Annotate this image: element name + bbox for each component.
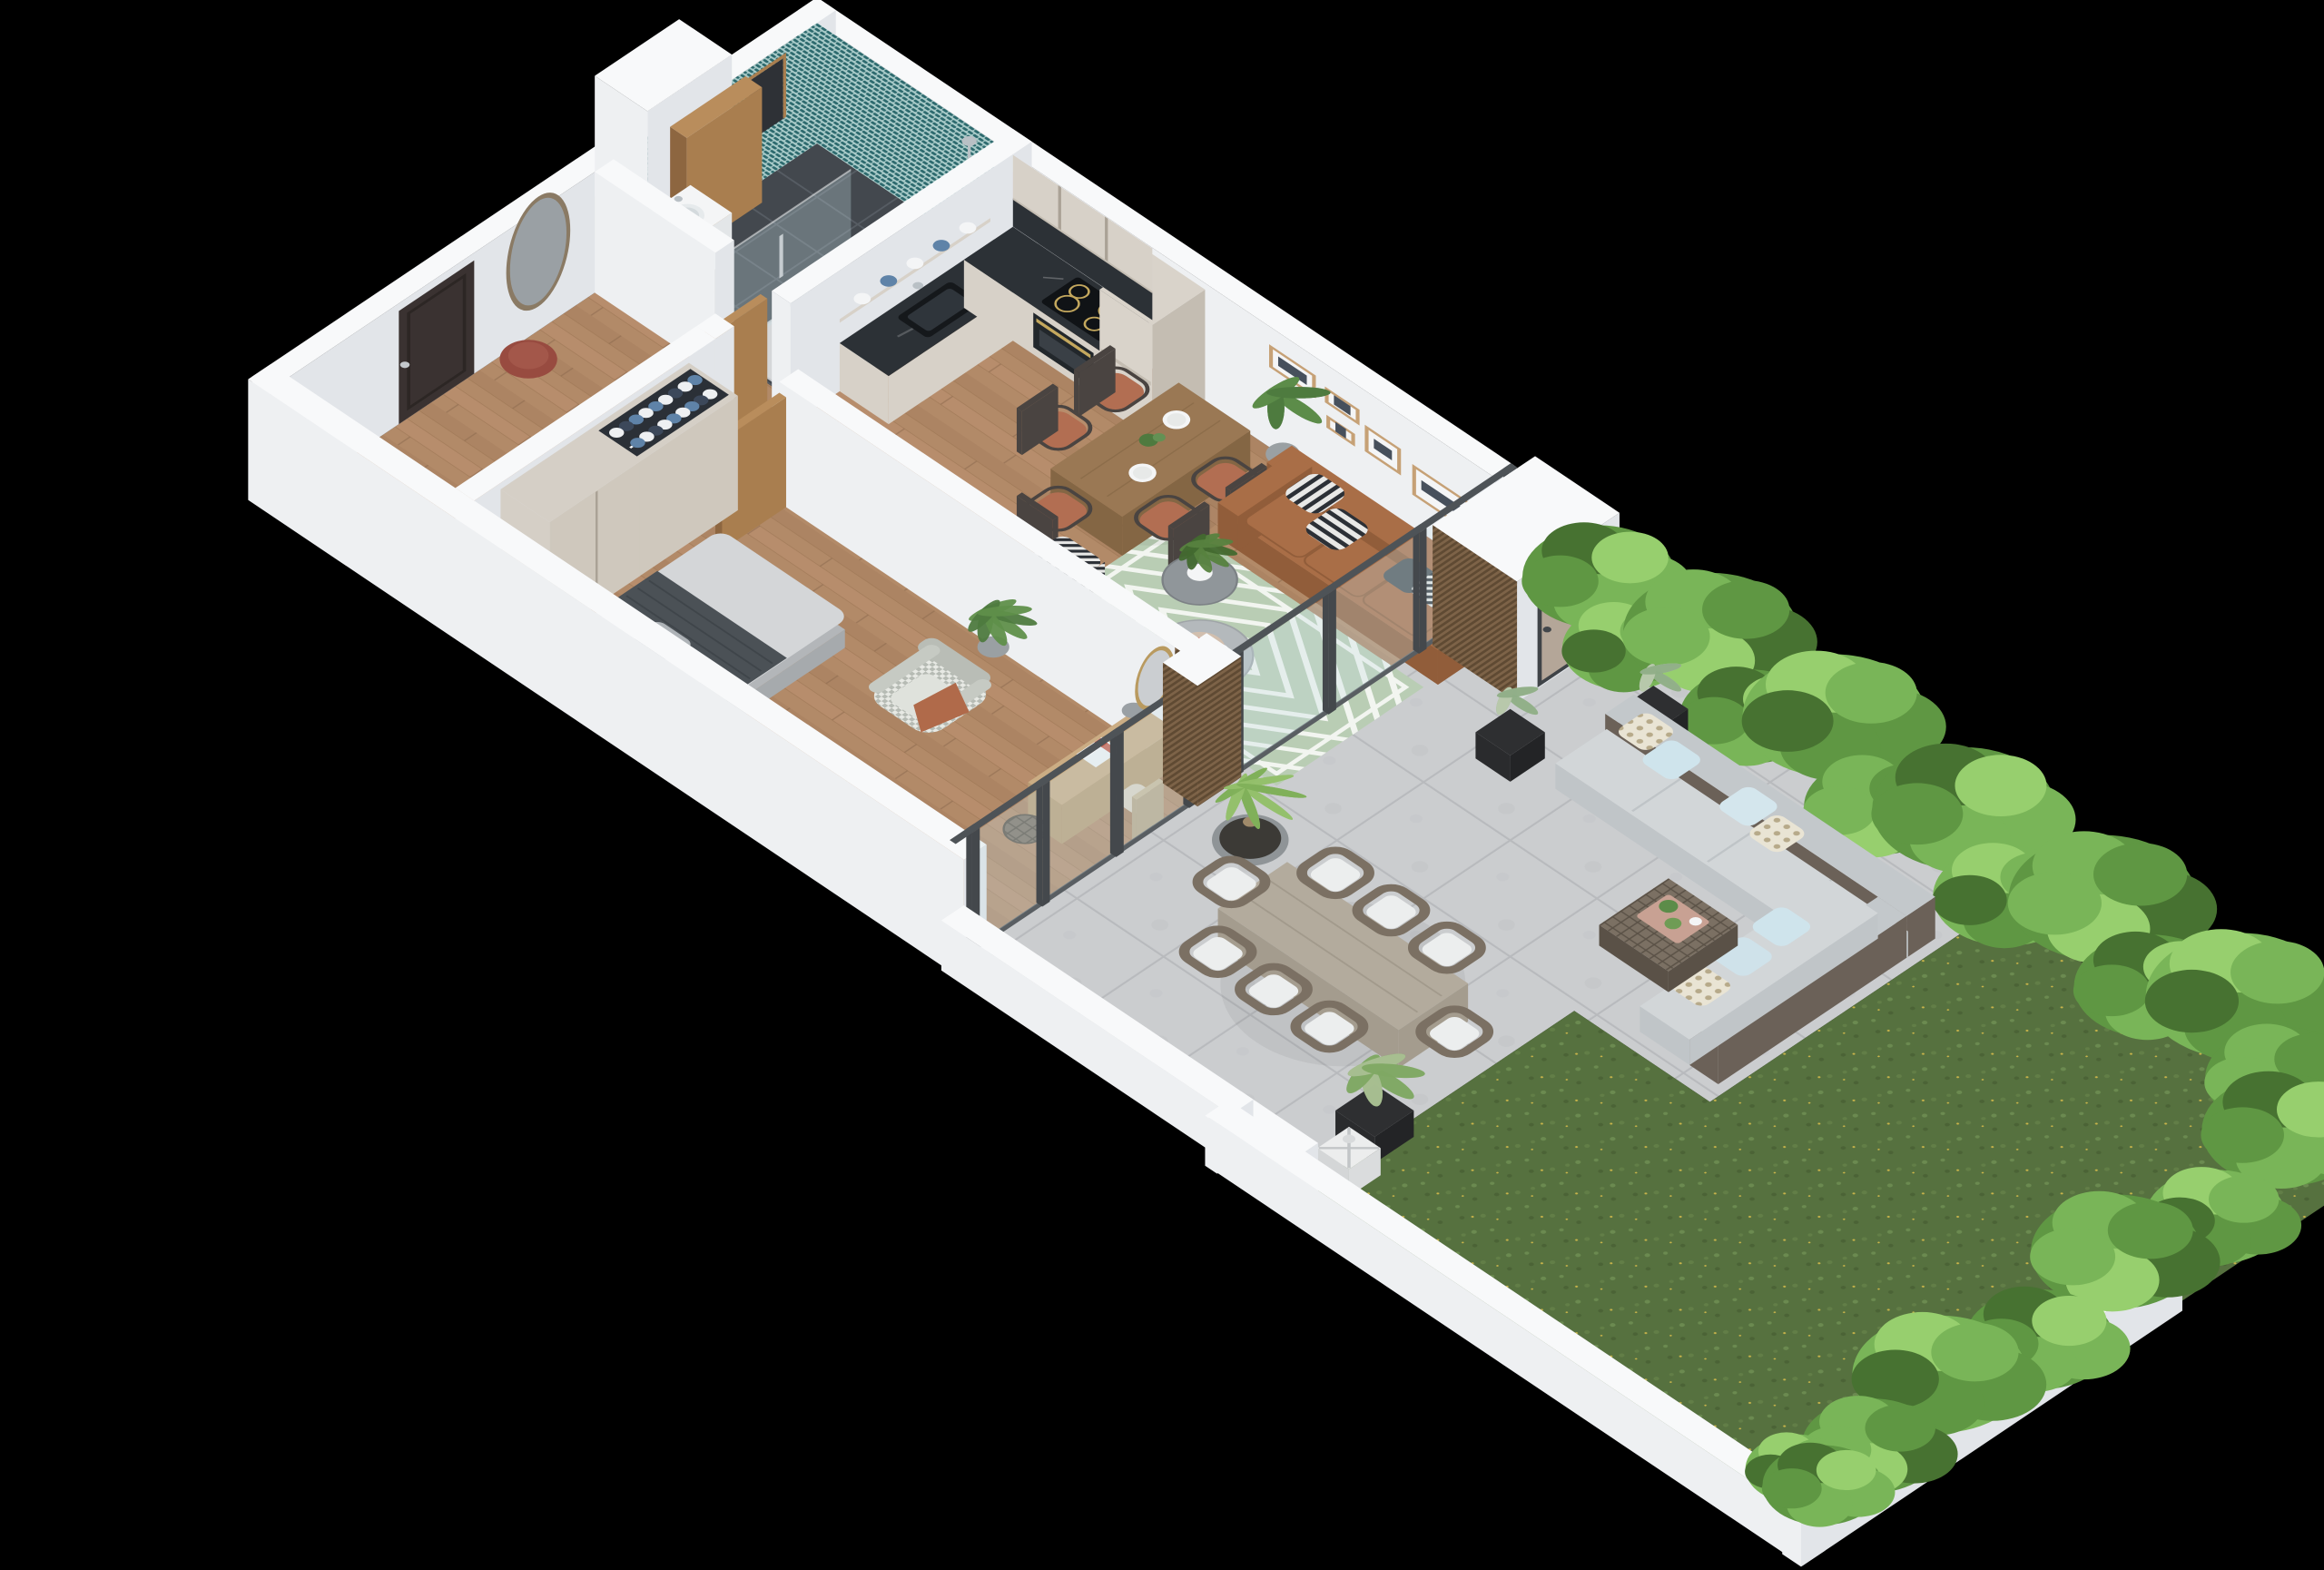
render-canvas: [0, 0, 2324, 1570]
floorplan-svg: [0, 0, 2324, 1570]
